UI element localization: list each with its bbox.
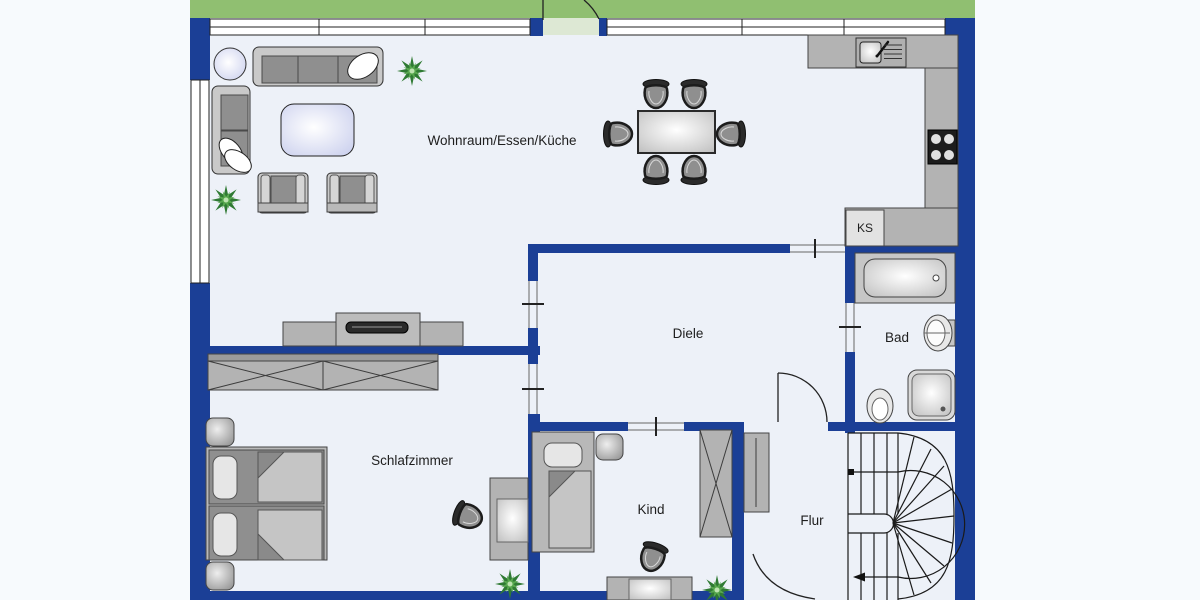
hall-cabinet bbox=[744, 433, 769, 512]
dining-chair bbox=[681, 80, 707, 109]
pillow bbox=[544, 443, 582, 467]
nightstand bbox=[596, 434, 623, 460]
fridge: KS bbox=[846, 210, 884, 246]
sofa-vertical bbox=[212, 86, 255, 177]
single-bed bbox=[532, 432, 594, 552]
plant bbox=[397, 56, 427, 86]
dining-chair bbox=[681, 156, 707, 185]
child-desk bbox=[607, 577, 692, 600]
floorplan-page: KS bbox=[0, 0, 1200, 600]
dining-table bbox=[638, 111, 715, 153]
kitchen-sink bbox=[856, 38, 906, 67]
dining-chair bbox=[604, 121, 633, 147]
dining-chair bbox=[643, 156, 669, 185]
pillow bbox=[213, 456, 237, 499]
stove bbox=[928, 130, 957, 164]
room-label-living: Wohnraum/Essen/Küche bbox=[427, 133, 576, 148]
floorplan-drawing: KS bbox=[0, 0, 1200, 600]
corridor-area bbox=[744, 433, 769, 512]
side-table bbox=[214, 48, 246, 80]
room-label-child: Kind bbox=[637, 502, 664, 517]
nightstand bbox=[206, 418, 234, 446]
double-bed bbox=[206, 447, 327, 560]
armchair bbox=[258, 173, 308, 213]
bathtub bbox=[855, 253, 955, 303]
coffee-table bbox=[281, 104, 354, 156]
fridge-label: KS bbox=[857, 221, 873, 235]
nightstand bbox=[206, 562, 234, 590]
room-label-bath: Bad bbox=[885, 330, 909, 345]
dining-chair bbox=[717, 121, 746, 147]
bedroom-desk bbox=[490, 478, 528, 560]
wardrobe bbox=[700, 430, 732, 537]
shower bbox=[908, 370, 955, 420]
toilet bbox=[867, 389, 893, 423]
room-label-corridor: Flur bbox=[800, 513, 824, 528]
plant bbox=[211, 185, 241, 215]
wardrobe bbox=[208, 354, 438, 390]
room-label-bedroom: Schlafzimmer bbox=[371, 453, 453, 468]
sofa-horizontal bbox=[253, 47, 383, 86]
pillow bbox=[213, 513, 237, 556]
washbasin bbox=[924, 315, 955, 351]
room-label-hallway: Diele bbox=[673, 326, 704, 341]
dining-chair bbox=[643, 80, 669, 109]
garden-strip bbox=[190, 0, 975, 20]
plant bbox=[495, 569, 525, 599]
armchair bbox=[327, 173, 377, 213]
